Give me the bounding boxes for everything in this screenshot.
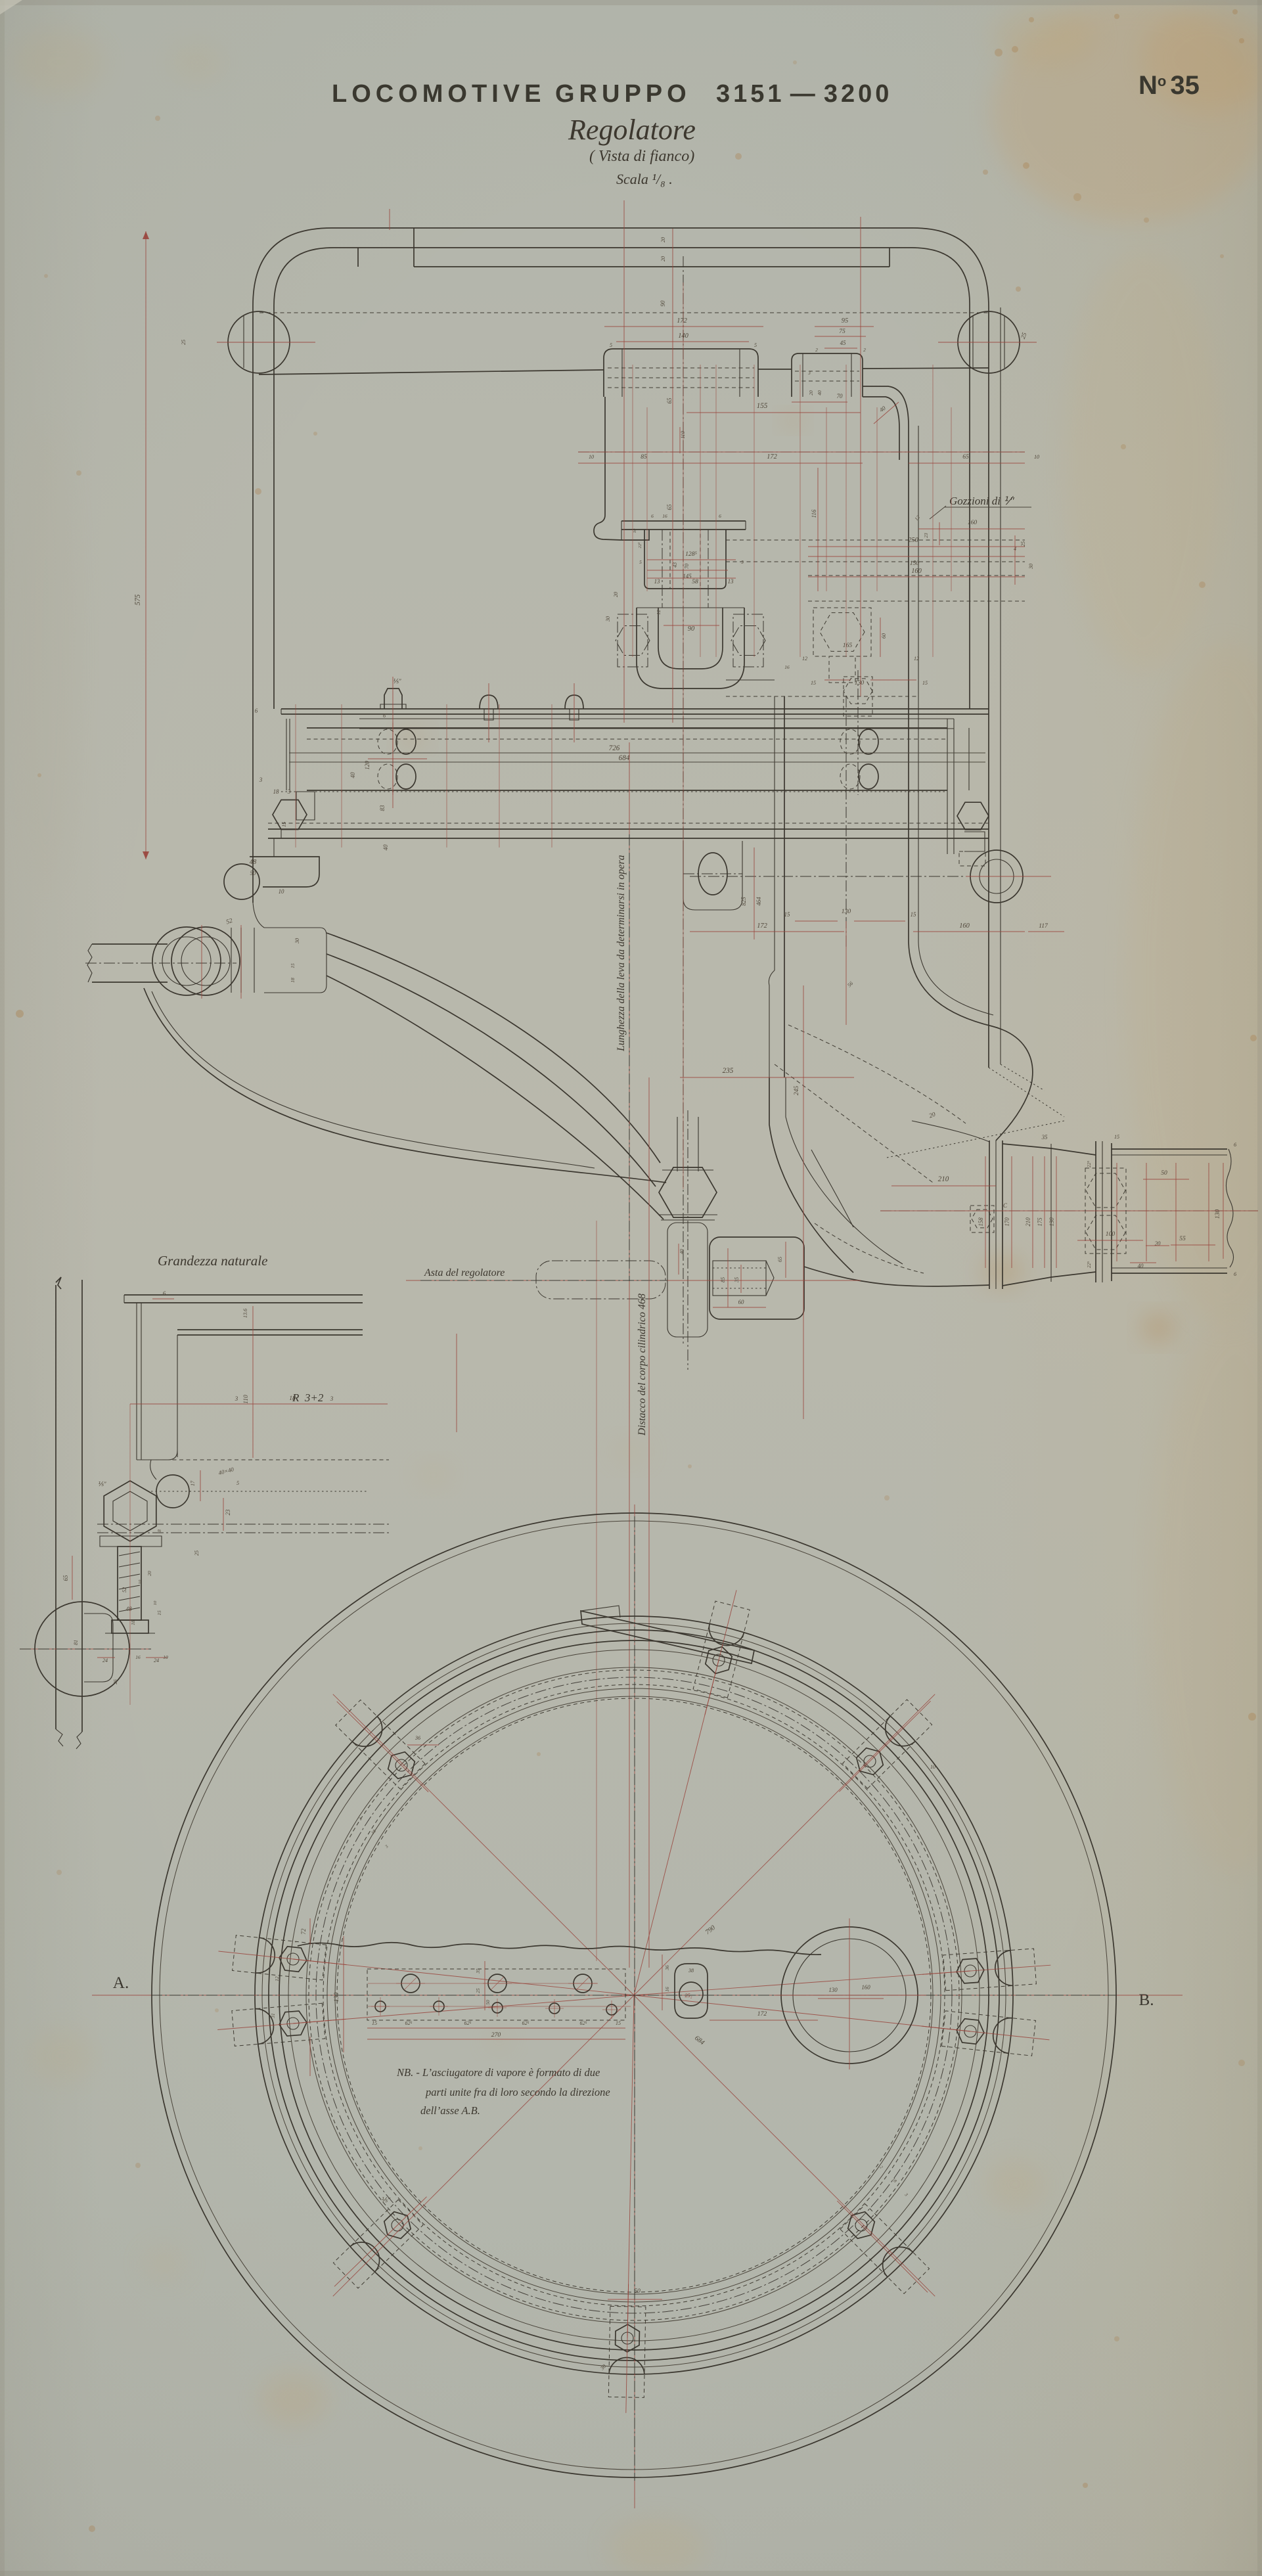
svg-text:250: 250 <box>908 537 918 544</box>
svg-text:Gozzioni di ⅟″: Gozzioni di ⅟″ <box>949 495 1015 507</box>
svg-text:31: 31 <box>270 2013 276 2018</box>
svg-text:25₂: 25₂ <box>685 1993 692 1999</box>
svg-text:83: 83 <box>379 805 386 811</box>
svg-text:17: 17 <box>190 1480 196 1486</box>
svg-text:12: 12 <box>802 656 807 662</box>
svg-text:dell’asse A.B.: dell’asse A.B. <box>420 2104 480 2117</box>
svg-text:40: 40 <box>1138 1263 1144 1269</box>
svg-text:25: 25 <box>181 340 187 345</box>
svg-text:Lunghezza della leva da determ: Lunghezza della leva da determinarsi in … <box>616 855 627 1052</box>
svg-text:6: 6 <box>163 1290 166 1297</box>
svg-text:155: 155 <box>757 402 768 410</box>
svg-text:10: 10 <box>589 454 594 460</box>
svg-text:12: 12 <box>274 1976 280 1981</box>
svg-text:270: 270 <box>491 2031 501 2039</box>
svg-text:2: 2 <box>863 347 866 353</box>
svg-text:50: 50 <box>485 2000 491 2005</box>
svg-text:3: 3 <box>287 788 291 795</box>
svg-text:20: 20 <box>660 256 666 261</box>
svg-text:50: 50 <box>634 2288 641 2295</box>
svg-text:130: 130 <box>842 908 851 915</box>
svg-text:22⁵: 22⁵ <box>1086 1161 1092 1167</box>
svg-text:15: 15 <box>372 2020 377 2026</box>
svg-text:117: 117 <box>1039 922 1048 930</box>
svg-text:62⁵: 62⁵ <box>464 2020 472 2026</box>
svg-text:48: 48 <box>126 1606 132 1612</box>
svg-text:5: 5 <box>741 559 744 565</box>
svg-text:22⁵: 22⁵ <box>1086 1261 1092 1268</box>
svg-text:40: 40 <box>349 772 356 778</box>
svg-text:172: 172 <box>757 922 767 930</box>
svg-text:3151 — 3200: 3151 — 3200 <box>716 80 892 108</box>
svg-text:Distacco del corpo cilindrico: Distacco del corpo cilindrico 468 <box>637 1294 648 1436</box>
svg-text:130: 130 <box>1048 1217 1055 1227</box>
svg-text:130: 130 <box>828 1987 838 1993</box>
svg-text:5: 5 <box>639 559 642 565</box>
svg-text:10: 10 <box>279 888 284 895</box>
svg-text:8: 8 <box>156 1529 162 1532</box>
svg-text:( Vista di fianco): ( Vista di fianco) <box>589 148 694 165</box>
svg-text:C: C <box>1003 1202 1007 1209</box>
svg-text:3: 3 <box>807 370 811 376</box>
svg-text:5: 5 <box>610 342 612 348</box>
svg-text:40: 40 <box>679 1249 685 1254</box>
svg-text:20: 20 <box>146 1571 152 1576</box>
svg-text:NB. - L’asciugatore di vapore: NB. - L’asciugatore di vapore è formato … <box>396 2066 600 2079</box>
svg-text:85: 85 <box>641 453 647 461</box>
svg-text:165: 165 <box>843 642 853 649</box>
svg-text:20: 20 <box>808 390 814 395</box>
svg-text:65: 65 <box>666 504 673 510</box>
svg-text:35: 35 <box>1041 1134 1048 1141</box>
svg-text:35: 35 <box>734 1277 740 1283</box>
svg-text:825: 825 <box>740 897 747 906</box>
svg-text:36: 36 <box>415 1735 420 1741</box>
svg-text:20: 20 <box>1155 1240 1161 1247</box>
svg-text:GRUPPO: GRUPPO <box>555 80 691 108</box>
svg-text:2: 2 <box>815 347 818 353</box>
svg-text:10: 10 <box>163 1654 168 1660</box>
svg-text:60: 60 <box>738 1299 744 1305</box>
svg-text:43: 43 <box>672 562 678 568</box>
svg-text:24: 24 <box>154 1658 159 1663</box>
svg-text:15: 15 <box>281 822 287 827</box>
svg-text:parti unite fra di loro second: parti unite fra di loro secondo la direz… <box>425 2086 610 2098</box>
svg-text:10: 10 <box>153 1600 158 1605</box>
svg-text:13.6: 13.6 <box>242 1309 248 1318</box>
svg-text:Asta del regolatore: Asta del regolatore <box>424 1267 505 1278</box>
svg-text:A.: A. <box>113 1974 129 1992</box>
svg-text:15: 15 <box>922 680 928 686</box>
svg-text:10: 10 <box>633 528 637 533</box>
svg-text:50: 50 <box>1161 1169 1167 1177</box>
svg-text:684: 684 <box>619 754 630 762</box>
svg-text:22⁵: 22⁵ <box>638 542 642 549</box>
svg-text:110: 110 <box>242 1395 250 1404</box>
svg-text:120: 120 <box>364 761 371 770</box>
svg-text:172: 172 <box>757 2010 767 2018</box>
svg-text:100: 100 <box>1106 1231 1116 1238</box>
svg-text:575: 575 <box>134 594 142 605</box>
svg-text:Scala ¹/₈ .: Scala ¹/₈ . <box>616 171 673 187</box>
svg-text:3: 3 <box>330 1395 334 1402</box>
svg-text:130: 130 <box>1214 1209 1221 1219</box>
svg-text:B.: B. <box>1138 1991 1154 2009</box>
svg-text:45: 45 <box>840 340 846 346</box>
svg-text:58: 58 <box>692 578 698 585</box>
svg-text:18: 18 <box>290 978 296 983</box>
svg-text:13: 13 <box>654 578 660 585</box>
svg-text:52: 52 <box>122 1587 127 1593</box>
svg-text:75: 75 <box>839 328 845 335</box>
svg-text:16: 16 <box>664 1987 670 1992</box>
svg-text:160: 160 <box>968 519 978 526</box>
svg-text:62⁵: 62⁵ <box>522 2020 530 2026</box>
svg-text:23: 23 <box>225 1509 231 1515</box>
svg-text:160: 160 <box>861 1984 870 1991</box>
svg-text:18: 18 <box>273 788 279 795</box>
svg-text:10: 10 <box>1034 454 1039 460</box>
svg-text:726: 726 <box>609 744 620 752</box>
svg-text:13: 13 <box>728 578 734 585</box>
svg-text:38: 38 <box>688 1968 694 1974</box>
svg-text:210: 210 <box>1025 1217 1031 1227</box>
svg-text:10: 10 <box>930 1764 935 1770</box>
svg-text:6: 6 <box>651 513 654 519</box>
svg-text:25: 25 <box>1020 541 1026 547</box>
svg-text:210: 210 <box>938 1175 949 1183</box>
svg-text:172: 172 <box>767 453 777 461</box>
svg-text:20: 20 <box>660 237 666 242</box>
svg-text:16: 16 <box>135 1654 141 1660</box>
svg-text:20: 20 <box>613 592 619 597</box>
svg-text:72: 72 <box>300 1928 307 1934</box>
svg-text:16: 16 <box>784 664 790 670</box>
svg-text:35: 35 <box>475 1968 481 1974</box>
svg-text:15: 15 <box>811 680 816 686</box>
svg-text:130: 130 <box>333 1993 340 2002</box>
svg-text:160: 160 <box>911 568 922 575</box>
svg-text:6: 6 <box>1234 1271 1236 1277</box>
svg-text:Regolatore: Regolatore <box>568 114 696 146</box>
svg-text:235: 235 <box>723 1067 734 1075</box>
svg-text:40: 40 <box>382 844 389 850</box>
svg-text:15: 15 <box>616 2020 621 2026</box>
svg-text:55: 55 <box>1179 1235 1186 1242</box>
svg-text:62⁵: 62⁵ <box>580 2020 587 2026</box>
svg-text:5: 5 <box>237 1480 239 1486</box>
svg-text:6: 6 <box>383 713 386 719</box>
svg-text:36: 36 <box>664 1965 670 1971</box>
svg-text:160: 160 <box>959 922 970 930</box>
svg-text:6: 6 <box>1234 1142 1236 1148</box>
svg-text:Grandezza naturale: Grandezza naturale <box>158 1253 267 1269</box>
svg-text:85: 85 <box>720 1277 726 1282</box>
svg-text:26: 26 <box>112 1679 118 1684</box>
svg-text:12: 12 <box>656 610 662 615</box>
svg-text:245: 245 <box>793 1086 800 1096</box>
svg-text:30: 30 <box>605 616 611 622</box>
svg-text:⅕″: ⅕″ <box>97 1481 106 1488</box>
svg-text:150: 150 <box>910 560 920 567</box>
svg-text:62⁵: 62⁵ <box>405 2020 413 2026</box>
svg-text:464: 464 <box>755 897 762 906</box>
svg-text:90: 90 <box>660 300 666 306</box>
svg-text:81: 81 <box>73 1640 79 1645</box>
svg-text:170: 170 <box>1004 1217 1010 1227</box>
svg-text:R 3+2: R 3+2 <box>292 1391 324 1404</box>
svg-text:23: 23 <box>923 533 929 538</box>
svg-text:140: 140 <box>678 332 688 340</box>
svg-text:3: 3 <box>235 1395 238 1402</box>
svg-text:65: 65 <box>962 453 969 461</box>
svg-text:15: 15 <box>1114 1134 1119 1140</box>
svg-text:60: 60 <box>881 633 887 639</box>
svg-text:145: 145 <box>683 573 692 579</box>
svg-text:15: 15 <box>784 911 790 918</box>
svg-text:48: 48 <box>250 859 257 866</box>
svg-text:10: 10 <box>138 1579 143 1584</box>
svg-text:172: 172 <box>677 317 687 325</box>
svg-text:70: 70 <box>837 393 843 399</box>
svg-text:65: 65 <box>777 1257 783 1262</box>
svg-text:12: 12 <box>914 656 919 662</box>
svg-text:40: 40 <box>817 390 823 395</box>
svg-text:5: 5 <box>754 342 757 348</box>
svg-text:50: 50 <box>250 870 256 876</box>
svg-text:30: 30 <box>294 938 300 944</box>
svg-text:116: 116 <box>811 509 817 518</box>
svg-text:15: 15 <box>156 1610 162 1616</box>
svg-text:15: 15 <box>290 963 296 968</box>
svg-text:65: 65 <box>666 397 673 403</box>
svg-text:128⁵: 128⁵ <box>685 551 697 558</box>
svg-text:15: 15 <box>911 911 916 918</box>
svg-text:6: 6 <box>255 708 258 714</box>
svg-text:⅕″: ⅕″ <box>392 678 401 685</box>
svg-text:175: 175 <box>1037 1217 1043 1227</box>
svg-text:110: 110 <box>680 431 686 439</box>
svg-text:18: 18 <box>130 1620 136 1625</box>
svg-text:24: 24 <box>102 1658 108 1663</box>
svg-text:⅕″: ⅕″ <box>381 2197 391 2204</box>
svg-text:6: 6 <box>719 513 721 519</box>
svg-text:LOCOMOTIVE: LOCOMOTIVE <box>332 80 545 108</box>
svg-text:90: 90 <box>688 625 695 633</box>
svg-text:158: 158 <box>978 1217 984 1227</box>
svg-text:25: 25 <box>475 1988 481 1993</box>
svg-text:16: 16 <box>662 513 667 519</box>
svg-text:•: • <box>295 1941 296 1945</box>
svg-text:65: 65 <box>62 1575 69 1581</box>
svg-text:25: 25 <box>194 1550 200 1556</box>
svg-text:95: 95 <box>842 317 848 325</box>
svg-text:130: 130 <box>855 679 865 687</box>
svg-text:70: 70 <box>684 564 690 569</box>
svg-text:30: 30 <box>1028 564 1034 570</box>
svg-text:3: 3 <box>259 777 263 783</box>
